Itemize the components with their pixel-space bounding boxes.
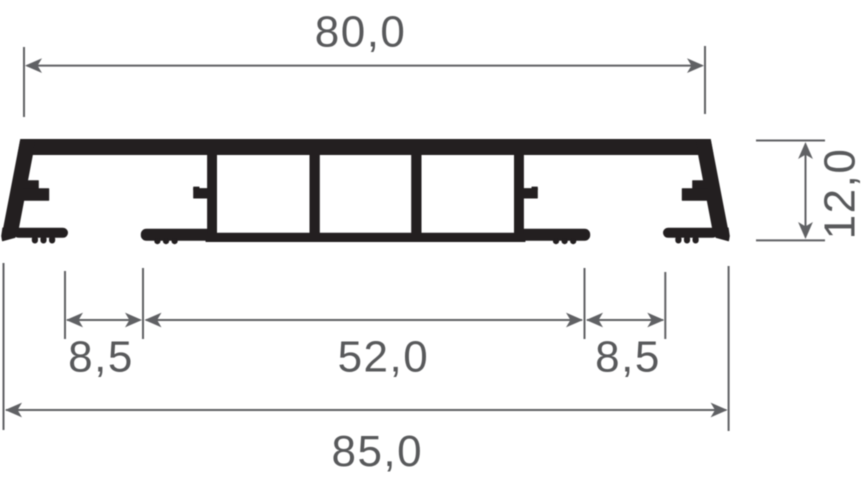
svg-text:52,0: 52,0: [338, 333, 430, 382]
svg-text:85,0: 85,0: [331, 427, 423, 476]
svg-text:8,5: 8,5: [595, 333, 661, 382]
svg-text:8,5: 8,5: [68, 333, 134, 382]
svg-text:80,0: 80,0: [315, 7, 407, 56]
svg-text:12,0: 12,0: [816, 148, 865, 240]
